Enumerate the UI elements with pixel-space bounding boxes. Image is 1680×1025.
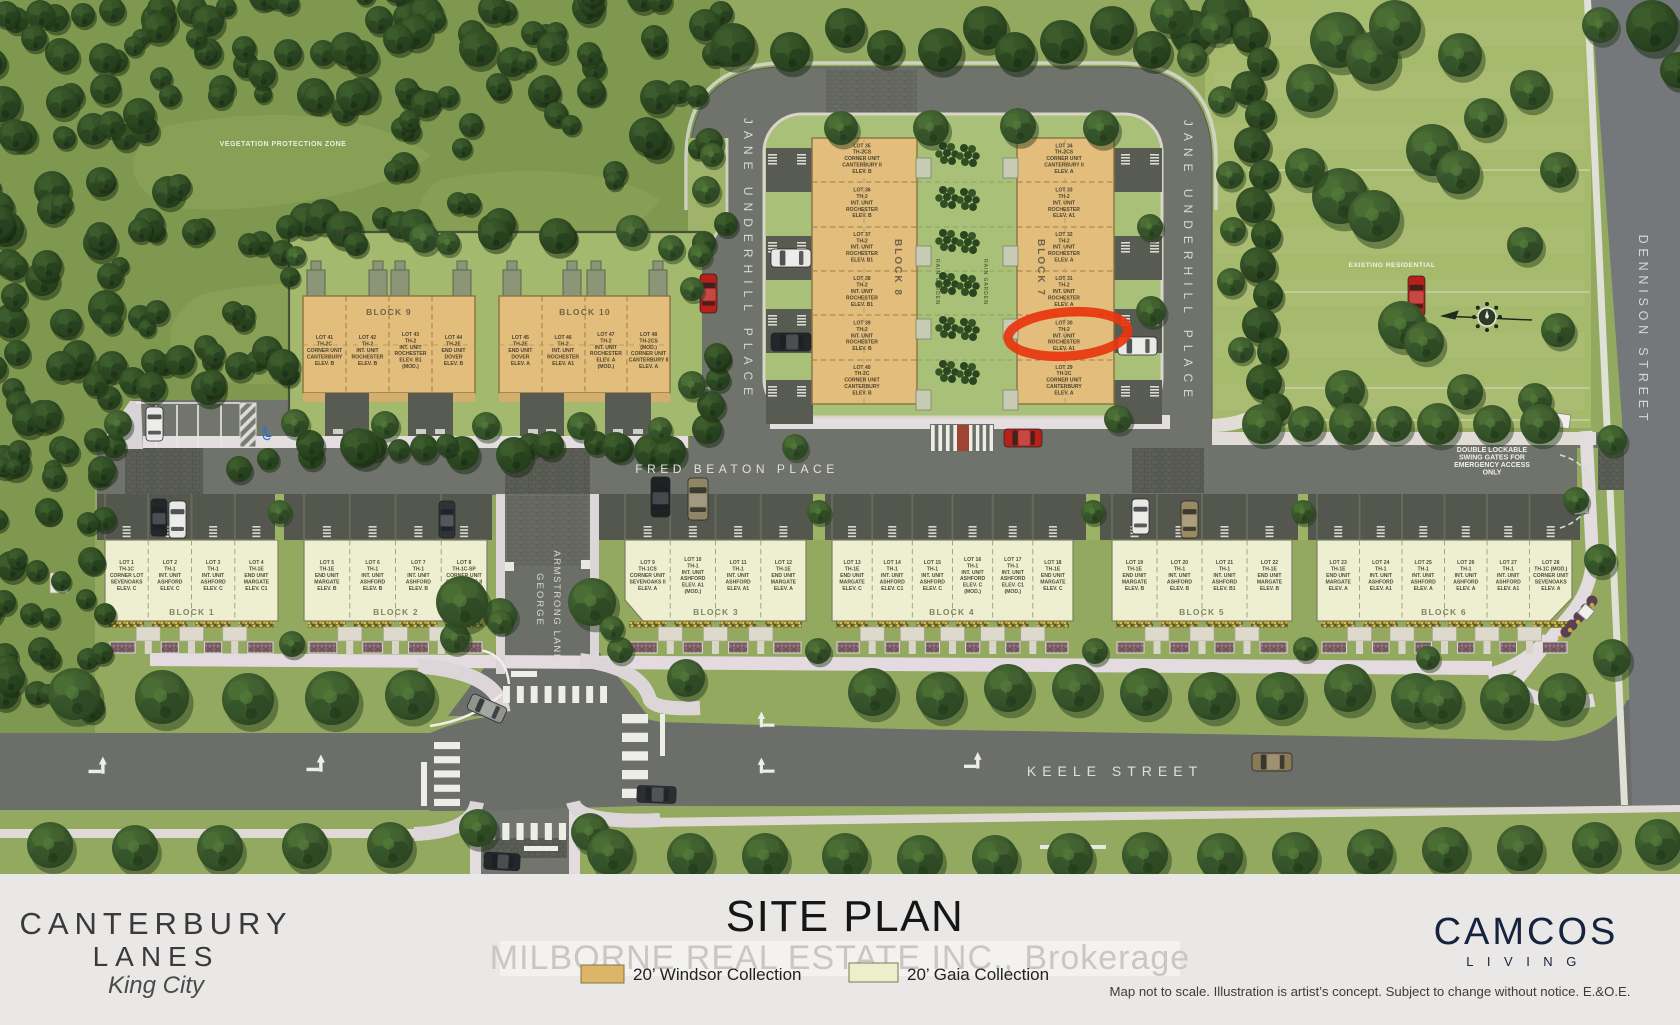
svg-text:LOT 7: LOT 7 bbox=[411, 560, 426, 566]
svg-text:LOT 47: LOT 47 bbox=[597, 332, 614, 338]
svg-text:20’ Gaia Collection: 20’ Gaia Collection bbox=[907, 965, 1049, 984]
svg-text:ELEV. B: ELEV. B bbox=[852, 213, 872, 219]
svg-text:ELEV. C: ELEV. C bbox=[160, 586, 180, 592]
svg-text:LOT 48: LOT 48 bbox=[640, 332, 657, 338]
svg-text:TH-1: TH-1 bbox=[732, 567, 743, 573]
svg-text:INT. UNIT: INT. UNIT bbox=[202, 573, 225, 579]
svg-text:ELEV. B: ELEV. B bbox=[852, 346, 872, 352]
svg-text:SITE PLAN: SITE PLAN bbox=[726, 892, 964, 941]
svg-text:ELEV. B: ELEV. B bbox=[1170, 586, 1190, 592]
svg-text:LOT 29: LOT 29 bbox=[1055, 365, 1072, 371]
svg-text:20’ Windsor Collection: 20’ Windsor Collection bbox=[633, 965, 802, 984]
svg-text:TH-1: TH-1 bbox=[164, 567, 175, 573]
svg-text:INT. UNIT: INT. UNIT bbox=[552, 348, 575, 354]
svg-text:TH-2C: TH-2C bbox=[855, 371, 870, 377]
svg-text:MARGATE: MARGATE bbox=[839, 579, 865, 585]
svg-text:King City: King City bbox=[108, 972, 206, 999]
svg-text:ROCHESTER: ROCHESTER bbox=[1048, 207, 1080, 213]
svg-text:ELEV. B: ELEV. B bbox=[358, 361, 378, 367]
svg-text:RAIN GARDEN: RAIN GARDEN bbox=[982, 259, 988, 305]
svg-text:MARGATE: MARGATE bbox=[1040, 579, 1066, 585]
svg-text:TH-2E: TH-2E bbox=[513, 342, 528, 348]
svg-text:ELEV. B: ELEV. B bbox=[1125, 586, 1145, 592]
svg-text:TH-1: TH-1 bbox=[1174, 567, 1185, 573]
svg-text:TH-2CS: TH-2CS bbox=[639, 338, 658, 344]
svg-text:ASHFORD: ASHFORD bbox=[1167, 579, 1193, 585]
svg-text:ASHFORD: ASHFORD bbox=[726, 579, 752, 585]
svg-text:ELEV. B: ELEV. B bbox=[409, 586, 429, 592]
svg-text:TH-2: TH-2 bbox=[405, 338, 416, 344]
svg-text:END UNIT: END UNIT bbox=[1041, 573, 1066, 579]
svg-text:ASHFORD: ASHFORD bbox=[1368, 579, 1394, 585]
svg-text:BLOCK 2: BLOCK 2 bbox=[373, 607, 419, 617]
svg-text:DENNISON STREET: DENNISON STREET bbox=[1636, 235, 1650, 426]
svg-text:BLOCK 7: BLOCK 7 bbox=[1035, 239, 1046, 297]
svg-text:TH-1: TH-1 bbox=[927, 567, 938, 573]
svg-text:TH-2C: TH-2C bbox=[317, 342, 332, 348]
svg-text:INT. UNIT: INT. UNIT bbox=[1455, 573, 1478, 579]
svg-text:MARGATE: MARGATE bbox=[1122, 579, 1148, 585]
svg-text:LOT 8: LOT 8 bbox=[457, 560, 472, 566]
svg-text:CANTERBURY II: CANTERBURY II bbox=[1044, 163, 1084, 169]
svg-text:ELEV. C: ELEV. C bbox=[203, 586, 223, 592]
svg-text:SWING GATES FOR: SWING GATES FOR bbox=[1459, 455, 1525, 462]
svg-text:DOVER: DOVER bbox=[444, 354, 462, 360]
svg-text:END UNIT: END UNIT bbox=[1122, 573, 1147, 579]
svg-text:LOT 3: LOT 3 bbox=[206, 560, 221, 566]
svg-text:ASHFORD: ASHFORD bbox=[1000, 576, 1026, 582]
svg-text:LOT 19: LOT 19 bbox=[1126, 560, 1143, 566]
svg-text:BLOCK 3: BLOCK 3 bbox=[693, 607, 739, 617]
svg-text:MARGATE: MARGATE bbox=[1257, 579, 1283, 585]
svg-text:CORNER UNIT: CORNER UNIT bbox=[630, 573, 666, 579]
svg-text:JANE UNDERHILL PLACE: JANE UNDERHILL PLACE bbox=[1181, 120, 1195, 404]
svg-text:END UNIT: END UNIT bbox=[315, 573, 340, 579]
svg-text:LOT 16: LOT 16 bbox=[964, 557, 981, 563]
svg-text:ROCHESTER: ROCHESTER bbox=[1048, 295, 1080, 301]
svg-text:ELEV. C: ELEV. C bbox=[117, 586, 137, 592]
svg-text:TH-1E: TH-1E bbox=[1331, 567, 1346, 573]
svg-text:LOT 46: LOT 46 bbox=[554, 335, 571, 341]
svg-text:ELEV. A: ELEV. A bbox=[596, 358, 615, 364]
svg-text:LOT 10: LOT 10 bbox=[684, 557, 701, 563]
svg-text:ROCHESTER: ROCHESTER bbox=[395, 351, 427, 357]
svg-text:INT. UNIT: INT. UNIT bbox=[1053, 333, 1076, 339]
svg-text:LOT 5: LOT 5 bbox=[320, 560, 335, 566]
svg-text:ELEV. A1: ELEV. A1 bbox=[1497, 586, 1519, 592]
svg-text:ELEV. B1: ELEV. B1 bbox=[851, 258, 873, 264]
svg-text:LOT 15: LOT 15 bbox=[924, 560, 941, 566]
svg-text:CORNER UNIT: CORNER UNIT bbox=[844, 156, 880, 162]
svg-text:TH-2: TH-2 bbox=[557, 342, 568, 348]
svg-text:CANTERBURY: CANTERBURY bbox=[1046, 384, 1082, 390]
svg-text:INT. UNIT: INT. UNIT bbox=[881, 573, 904, 579]
svg-text:TH-2: TH-2 bbox=[1058, 194, 1069, 200]
svg-text:EMERGENCY ACCESS: EMERGENCY ACCESS bbox=[1454, 462, 1530, 469]
svg-text:LOT 23: LOT 23 bbox=[1330, 560, 1347, 566]
svg-text:INT. UNIT: INT. UNIT bbox=[1168, 573, 1191, 579]
svg-text:END UNIT: END UNIT bbox=[244, 573, 269, 579]
svg-text:ROCHESTER: ROCHESTER bbox=[1048, 251, 1080, 257]
svg-text:END UNIT: END UNIT bbox=[1257, 573, 1282, 579]
svg-text:ASHFORD: ASHFORD bbox=[201, 579, 227, 585]
svg-text:VEGETATION PROTECTION ZONE: VEGETATION PROTECTION ZONE bbox=[220, 141, 347, 148]
svg-text:TH-2: TH-2 bbox=[856, 194, 867, 200]
svg-text:SEVENOAKS: SEVENOAKS bbox=[111, 579, 144, 585]
svg-text:LOT 20: LOT 20 bbox=[1171, 560, 1188, 566]
svg-text:TH-2: TH-2 bbox=[856, 327, 867, 333]
svg-text:BLOCK 6: BLOCK 6 bbox=[1421, 607, 1467, 617]
svg-text:Map not to scale. Illustration: Map not to scale. Illustration is artist… bbox=[1110, 984, 1631, 999]
svg-text:ELEV. B: ELEV. B bbox=[852, 390, 872, 396]
svg-text:GEORGE: GEORGE bbox=[534, 573, 545, 627]
svg-text:ASHFORD: ASHFORD bbox=[1411, 579, 1437, 585]
svg-text:RAIN GARDEN: RAIN GARDEN bbox=[934, 259, 940, 305]
svg-text:TH-1CS: TH-1CS bbox=[638, 567, 657, 573]
svg-text:LOT 14: LOT 14 bbox=[884, 560, 901, 566]
svg-text:CANTERBURY II: CANTERBURY II bbox=[629, 358, 669, 364]
svg-text:LOT 22: LOT 22 bbox=[1261, 560, 1278, 566]
svg-text:ROCHESTER: ROCHESTER bbox=[846, 251, 878, 257]
svg-text:LOT 25: LOT 25 bbox=[1415, 560, 1432, 566]
svg-text:TH-1C (MOD.): TH-1C (MOD.) bbox=[1534, 567, 1567, 573]
svg-text:LOT 11: LOT 11 bbox=[730, 560, 747, 566]
svg-text:ELEV. A: ELEV. A bbox=[1456, 586, 1475, 592]
svg-text:LOT 31: LOT 31 bbox=[1055, 276, 1072, 282]
svg-text:INT. UNIT: INT. UNIT bbox=[1053, 289, 1076, 295]
svg-text:TH-1: TH-1 bbox=[367, 567, 378, 573]
svg-text:TH-1: TH-1 bbox=[1503, 567, 1514, 573]
svg-text:INT. UNIT: INT. UNIT bbox=[159, 573, 182, 579]
svg-text:LOT 6: LOT 6 bbox=[365, 560, 380, 566]
svg-text:TH-2: TH-2 bbox=[856, 238, 867, 244]
svg-text:INT. UNIT: INT. UNIT bbox=[1053, 245, 1076, 251]
svg-text:TH-2CS: TH-2CS bbox=[1055, 150, 1074, 156]
svg-text:ELEV. C: ELEV. C bbox=[842, 586, 862, 592]
svg-text:ELEV. A1: ELEV. A1 bbox=[1370, 586, 1392, 592]
svg-text:MARGATE: MARGATE bbox=[771, 579, 797, 585]
svg-text:TH-2E: TH-2E bbox=[446, 342, 461, 348]
svg-text:BLOCK 5: BLOCK 5 bbox=[1179, 607, 1225, 617]
svg-text:ASHFORD: ASHFORD bbox=[406, 579, 432, 585]
svg-text:LOT 44: LOT 44 bbox=[445, 335, 462, 341]
svg-text:ROCHESTER: ROCHESTER bbox=[590, 351, 622, 357]
svg-text:ROCHESTER: ROCHESTER bbox=[1048, 340, 1080, 346]
svg-text:ELEV. A: ELEV. A bbox=[638, 586, 657, 592]
svg-text:TH-2C: TH-2C bbox=[1057, 371, 1072, 377]
svg-text:LOT 1: LOT 1 bbox=[119, 560, 134, 566]
svg-text:ELEV. A: ELEV. A bbox=[1054, 169, 1073, 175]
svg-text:SEVENOAKS II: SEVENOAKS II bbox=[629, 579, 666, 585]
svg-text:TH-2: TH-2 bbox=[362, 342, 373, 348]
svg-text:LANES: LANES bbox=[93, 941, 220, 972]
svg-text:TH-1: TH-1 bbox=[967, 563, 978, 569]
svg-text:ELEV. A: ELEV. A bbox=[774, 586, 793, 592]
svg-text:INT. UNIT: INT. UNIT bbox=[1002, 570, 1025, 576]
svg-text:ELEV. A: ELEV. A bbox=[1329, 586, 1348, 592]
svg-text:LIVING: LIVING bbox=[1466, 954, 1590, 969]
svg-text:LOT 12: LOT 12 bbox=[775, 560, 792, 566]
svg-text:LOT 33: LOT 33 bbox=[1055, 188, 1072, 194]
svg-text:CORNER UNIT: CORNER UNIT bbox=[1046, 378, 1082, 384]
svg-text:TH-1E: TH-1E bbox=[1127, 567, 1142, 573]
svg-text:ASHFORD: ASHFORD bbox=[960, 576, 986, 582]
svg-text:CORNER LOT: CORNER LOT bbox=[110, 573, 145, 579]
svg-text:CAMCOS: CAMCOS bbox=[1434, 911, 1619, 953]
svg-text:INT. UNIT: INT. UNIT bbox=[727, 573, 750, 579]
svg-text:LOT 13: LOT 13 bbox=[843, 560, 860, 566]
svg-text:ELEV. B1: ELEV. B1 bbox=[851, 302, 873, 308]
svg-text:ELEV. B: ELEV. B bbox=[315, 361, 335, 367]
svg-text:ARMSTRONG LANE: ARMSTRONG LANE bbox=[551, 550, 562, 662]
svg-text:KEELE STREET: KEELE STREET bbox=[1027, 763, 1203, 779]
svg-text:TH-1: TH-1 bbox=[1219, 567, 1230, 573]
svg-text:LOT 37: LOT 37 bbox=[853, 232, 870, 238]
svg-text:LOT 9: LOT 9 bbox=[640, 560, 655, 566]
svg-text:ELEV. B: ELEV. B bbox=[317, 586, 337, 592]
svg-text:INT. UNIT: INT. UNIT bbox=[1053, 200, 1076, 206]
svg-text:CANTERBURY II: CANTERBURY II bbox=[842, 163, 882, 169]
svg-text:MARGATE: MARGATE bbox=[244, 579, 270, 585]
svg-text:BLOCK 4: BLOCK 4 bbox=[929, 607, 975, 617]
svg-text:ASHFORD: ASHFORD bbox=[157, 579, 183, 585]
svg-text:ELEV. B: ELEV. B bbox=[363, 586, 383, 592]
svg-text:TH-2: TH-2 bbox=[1058, 238, 1069, 244]
svg-text:ELEV. C1: ELEV. C1 bbox=[1002, 583, 1024, 589]
svg-text:BLOCK 1: BLOCK 1 bbox=[169, 607, 215, 617]
svg-text:ASHFORD: ASHFORD bbox=[1496, 579, 1522, 585]
svg-text:TH-1C-SP: TH-1C-SP bbox=[452, 567, 476, 573]
svg-text:INT. UNIT: INT. UNIT bbox=[851, 200, 874, 206]
svg-text:LOT 21: LOT 21 bbox=[1216, 560, 1233, 566]
svg-text:ELEV. A: ELEV. A bbox=[1054, 390, 1073, 396]
svg-text:LOT 17: LOT 17 bbox=[1004, 557, 1021, 563]
svg-text:CORNER UNIT: CORNER UNIT bbox=[1533, 573, 1569, 579]
svg-text:ELEV. B: ELEV. B bbox=[444, 361, 464, 367]
svg-text:TH-1E: TH-1E bbox=[776, 567, 791, 573]
svg-text:ROCHESTER: ROCHESTER bbox=[846, 340, 878, 346]
svg-text:TH-1E: TH-1E bbox=[320, 567, 335, 573]
svg-text:MARGATE: MARGATE bbox=[1326, 579, 1352, 585]
svg-text:INT. UNIT: INT. UNIT bbox=[361, 573, 384, 579]
svg-text:LOT 32: LOT 32 bbox=[1055, 232, 1072, 238]
svg-text:INT. UNIT: INT. UNIT bbox=[851, 245, 874, 251]
svg-text:TH-2CS: TH-2CS bbox=[853, 150, 872, 156]
svg-text:(MOD.): (MOD.) bbox=[402, 364, 419, 370]
svg-text:ELEV. C: ELEV. C bbox=[1043, 586, 1063, 592]
svg-text:ASHFORD: ASHFORD bbox=[360, 579, 386, 585]
svg-text:(MOD.): (MOD.) bbox=[598, 364, 615, 370]
svg-text:(MOD.): (MOD.) bbox=[964, 589, 981, 595]
svg-text:ELEV. B: ELEV. B bbox=[852, 169, 872, 175]
svg-text:END UNIT: END UNIT bbox=[508, 348, 533, 354]
svg-text:ELEV. A1: ELEV. A1 bbox=[727, 586, 749, 592]
svg-text:CORNER UNIT: CORNER UNIT bbox=[1046, 156, 1082, 162]
svg-text:INT. UNIT: INT. UNIT bbox=[595, 345, 618, 351]
svg-text:TH-1: TH-1 bbox=[1375, 567, 1386, 573]
svg-text:ELEV. A: ELEV. A bbox=[639, 364, 658, 370]
svg-text:ELEV. B: ELEV. B bbox=[1260, 586, 1280, 592]
svg-text:ASHFORD: ASHFORD bbox=[1212, 579, 1238, 585]
svg-text:ASHFORD: ASHFORD bbox=[880, 579, 906, 585]
svg-text:(MOD.): (MOD.) bbox=[640, 345, 657, 351]
svg-text:TH-1: TH-1 bbox=[887, 567, 898, 573]
svg-text:ROCHESTER: ROCHESTER bbox=[846, 295, 878, 301]
svg-text:INT. UNIT: INT. UNIT bbox=[851, 333, 874, 339]
svg-text:INT. UNIT: INT. UNIT bbox=[407, 573, 430, 579]
svg-text:BLOCK 9: BLOCK 9 bbox=[366, 307, 412, 317]
svg-text:BLOCK 8: BLOCK 8 bbox=[892, 239, 903, 297]
svg-text:INT. UNIT: INT. UNIT bbox=[682, 570, 705, 576]
svg-text:LOT 2: LOT 2 bbox=[163, 560, 178, 566]
svg-text:TH-1E: TH-1E bbox=[1262, 567, 1277, 573]
svg-text:END UNIT: END UNIT bbox=[441, 348, 466, 354]
svg-text:LOT 45: LOT 45 bbox=[512, 335, 529, 341]
svg-text:LOT 24: LOT 24 bbox=[1372, 560, 1389, 566]
svg-text:LOT 28: LOT 28 bbox=[1542, 560, 1559, 566]
svg-text:TH-1: TH-1 bbox=[687, 563, 698, 569]
svg-text:ELEV. A: ELEV. A bbox=[1414, 586, 1433, 592]
svg-text:TH-1E: TH-1E bbox=[845, 567, 860, 573]
svg-text:JANE UNDERHILL PLACE: JANE UNDERHILL PLACE bbox=[741, 118, 755, 402]
svg-text:(MOD.): (MOD.) bbox=[685, 589, 702, 595]
svg-text:LOT 40: LOT 40 bbox=[853, 365, 870, 371]
svg-text:ELEV. A: ELEV. A bbox=[1054, 302, 1073, 308]
svg-text:TH-1: TH-1 bbox=[1460, 567, 1471, 573]
svg-text:ELEV. C1: ELEV. C1 bbox=[881, 586, 903, 592]
svg-text:LOT 30: LOT 30 bbox=[1055, 321, 1072, 327]
svg-text:TH-1: TH-1 bbox=[1007, 563, 1018, 569]
svg-text:INT. UNIT: INT. UNIT bbox=[851, 289, 874, 295]
svg-text:CANTERBURY: CANTERBURY bbox=[19, 906, 292, 941]
svg-text:LOT 43: LOT 43 bbox=[402, 332, 419, 338]
svg-text:INT. UNIT: INT. UNIT bbox=[1412, 573, 1435, 579]
svg-text:TH-1: TH-1 bbox=[1418, 567, 1429, 573]
svg-text:CORNER UNIT: CORNER UNIT bbox=[307, 348, 343, 354]
svg-text:INT. UNIT: INT. UNIT bbox=[1497, 573, 1520, 579]
svg-text:END UNIT: END UNIT bbox=[840, 573, 865, 579]
svg-text:MARGATE: MARGATE bbox=[314, 579, 340, 585]
svg-text:ELEV. C1: ELEV. C1 bbox=[245, 586, 267, 592]
svg-text:INT. UNIT: INT. UNIT bbox=[921, 573, 944, 579]
svg-text:CANTERBURY: CANTERBURY bbox=[307, 354, 343, 360]
svg-text:ELEV. B1: ELEV. B1 bbox=[1213, 586, 1235, 592]
svg-text:LOT 18: LOT 18 bbox=[1044, 560, 1061, 566]
svg-text:INT. UNIT: INT. UNIT bbox=[356, 348, 379, 354]
svg-text:INT. UNIT: INT. UNIT bbox=[961, 570, 984, 576]
svg-text:TH-2: TH-2 bbox=[1058, 283, 1069, 289]
svg-text:TH-1C: TH-1C bbox=[119, 567, 134, 573]
svg-text:CORNER UNIT: CORNER UNIT bbox=[844, 378, 880, 384]
svg-text:LOT 4: LOT 4 bbox=[249, 560, 264, 566]
svg-text:LOT 38: LOT 38 bbox=[853, 276, 870, 282]
svg-text:FRED BEATON PLACE: FRED BEATON PLACE bbox=[635, 462, 838, 476]
svg-text:DOVER: DOVER bbox=[511, 354, 529, 360]
svg-text:LOT 34: LOT 34 bbox=[1055, 143, 1072, 149]
svg-text:TH-1: TH-1 bbox=[207, 567, 218, 573]
svg-text:ELEV. B1: ELEV. B1 bbox=[399, 358, 421, 364]
svg-text:LOT 41: LOT 41 bbox=[316, 335, 333, 341]
svg-text:ELEV. A1: ELEV. A1 bbox=[552, 361, 574, 367]
svg-text:TH-2: TH-2 bbox=[1058, 327, 1069, 333]
svg-text:LOT 42: LOT 42 bbox=[359, 335, 376, 341]
svg-text:EXISTING RESIDENTIAL: EXISTING RESIDENTIAL bbox=[1349, 262, 1436, 269]
svg-text:SEVENOAKS: SEVENOAKS bbox=[1535, 579, 1568, 585]
svg-text:ELEV. A1: ELEV. A1 bbox=[682, 583, 704, 589]
svg-text:ROCHESTER: ROCHESTER bbox=[547, 354, 579, 360]
svg-text:ELEV. A1: ELEV. A1 bbox=[1053, 213, 1075, 219]
svg-text:ELEV. A: ELEV. A bbox=[1054, 258, 1073, 264]
svg-text:END UNIT: END UNIT bbox=[1326, 573, 1351, 579]
svg-text:INT. UNIT: INT. UNIT bbox=[1213, 573, 1236, 579]
svg-text:CANTERBURY: CANTERBURY bbox=[844, 384, 880, 390]
svg-text:ELEV. A: ELEV. A bbox=[511, 361, 530, 367]
svg-text:INT. UNIT: INT. UNIT bbox=[1370, 573, 1393, 579]
svg-text:DOUBLE LOCKABLE: DOUBLE LOCKABLE bbox=[1457, 447, 1528, 454]
svg-text:ASHFORD: ASHFORD bbox=[680, 576, 706, 582]
svg-text:LOT 27: LOT 27 bbox=[1500, 560, 1517, 566]
svg-text:ELEV. C: ELEV. C bbox=[963, 583, 983, 589]
svg-text:CORNER UNIT: CORNER UNIT bbox=[631, 351, 667, 357]
svg-text:LOT 36: LOT 36 bbox=[853, 188, 870, 194]
svg-text:LOT 39: LOT 39 bbox=[853, 321, 870, 327]
svg-text:(MOD.): (MOD.) bbox=[1004, 589, 1021, 595]
svg-text:ELEV. A: ELEV. A bbox=[1541, 586, 1560, 592]
svg-text:ELEV. C: ELEV. C bbox=[923, 586, 943, 592]
svg-text:ASHFORD: ASHFORD bbox=[920, 579, 946, 585]
svg-text:LOT 26: LOT 26 bbox=[1457, 560, 1474, 566]
svg-text:TH-1E: TH-1E bbox=[249, 567, 264, 573]
svg-text:TH-2: TH-2 bbox=[856, 283, 867, 289]
svg-text:TH-1E: TH-1E bbox=[1046, 567, 1061, 573]
svg-text:END UNIT: END UNIT bbox=[771, 573, 796, 579]
svg-text:ONLY: ONLY bbox=[1483, 470, 1502, 477]
svg-text:FENCE: FENCE bbox=[332, 229, 355, 236]
svg-text:ROCHESTER: ROCHESTER bbox=[846, 207, 878, 213]
svg-text:ASHFORD: ASHFORD bbox=[1453, 579, 1479, 585]
svg-text:BLOCK 10: BLOCK 10 bbox=[559, 307, 611, 317]
svg-text:INT. UNIT: INT. UNIT bbox=[399, 345, 422, 351]
svg-text:TH-2: TH-2 bbox=[600, 338, 611, 344]
svg-text:TH-1: TH-1 bbox=[413, 567, 424, 573]
svg-text:ROCHESTER: ROCHESTER bbox=[352, 354, 384, 360]
